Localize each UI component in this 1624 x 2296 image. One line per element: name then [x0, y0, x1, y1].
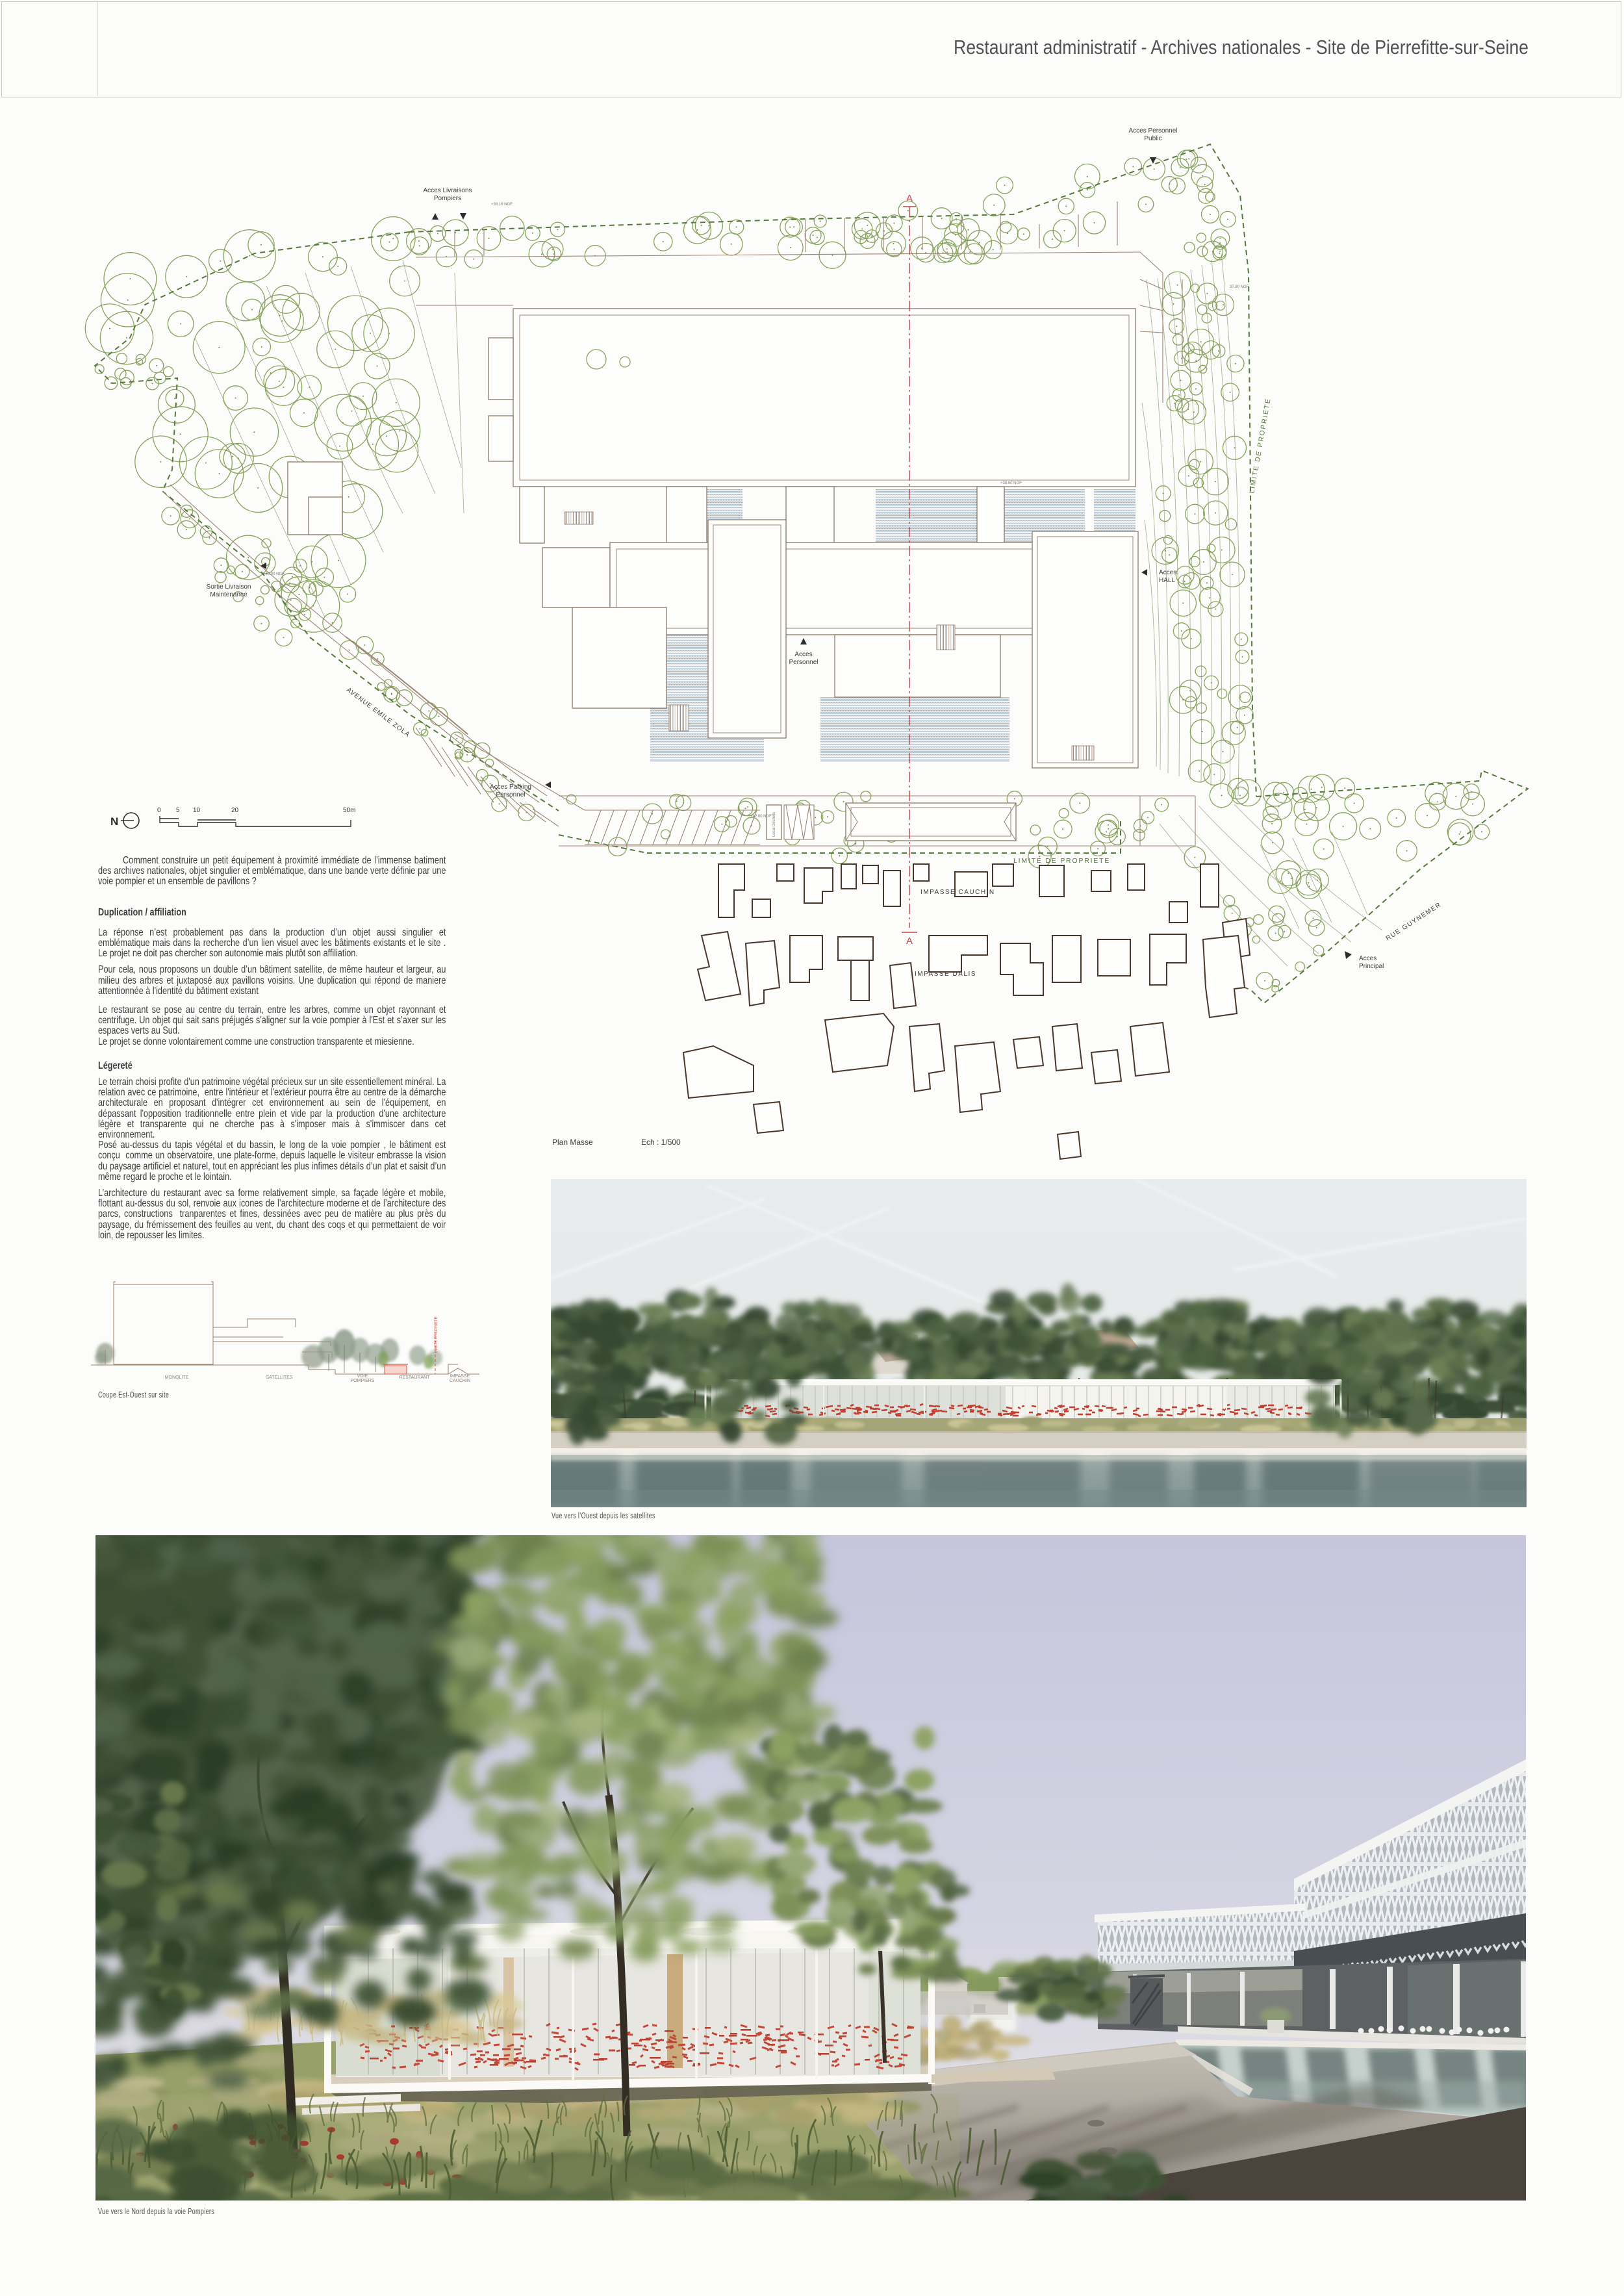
svg-text:IMPASSE: IMPASSE [450, 1374, 470, 1379]
svg-text:CAUCHIN: CAUCHIN [450, 1379, 470, 1383]
svg-text:20: 20 [231, 807, 239, 814]
svg-text:5: 5 [176, 807, 180, 814]
svg-text:Plan Masse: Plan Masse [552, 1138, 593, 1147]
svg-text:LIMITE DE PROPRIETE: LIMITE DE PROPRIETE [1248, 398, 1273, 494]
svg-text:RESTAURANT: RESTAURANT [400, 1375, 431, 1380]
svg-text:Maintenance: Maintenance [210, 591, 247, 598]
svg-text:LIMITE DE PROPRIETE: LIMITE DE PROPRIETE [1013, 857, 1110, 865]
svg-text:Personnel: Personnel [789, 659, 818, 666]
svg-text:VOIE: VOIE [357, 1374, 368, 1379]
svg-text:Acces Personnel: Acces Personnel [1128, 127, 1177, 134]
svg-text:Acces Parking: Acces Parking [490, 784, 531, 791]
svg-text:IMPASSE DALIS: IMPASSE DALIS [915, 971, 976, 978]
svg-text:IMPASSE CAUCHIN: IMPASSE CAUCHIN [920, 889, 995, 896]
svg-text:+40.00 NGF: +40.00 NGF [263, 572, 285, 576]
svg-text:Ech : 1/500: Ech : 1/500 [641, 1138, 681, 1147]
svg-text:Acces: Acces [1159, 569, 1176, 576]
svg-text:MONOLITE: MONOLITE [165, 1375, 189, 1380]
svg-text:Acces Livraisons: Acces Livraisons [423, 187, 472, 194]
svg-text:Local Dechets: Local Dechets [772, 812, 776, 837]
svg-text:Pompiers: Pompiers [434, 195, 461, 202]
svg-text:RUE GUYNEMER: RUE GUYNEMER [1385, 901, 1443, 943]
svg-text:+38.16 NGF: +38.16 NGF [491, 203, 513, 207]
svg-text:A: A [906, 193, 913, 204]
svg-text:+38.50 NGF: +38.50 NGF [1000, 481, 1022, 485]
svg-text:0: 0 [157, 807, 161, 814]
svg-text:HALL: HALL [1159, 577, 1175, 584]
svg-text:A: A [906, 936, 913, 947]
svg-text:37.80 NGF: 37.80 NGF [1230, 285, 1249, 289]
svg-text:+42.00 NGF: +42.00 NGF [750, 815, 772, 819]
svg-text:AVENUE EMILE ZOLA: AVENUE EMILE ZOLA [345, 687, 411, 739]
svg-text:Acces: Acces [1359, 955, 1377, 962]
svg-text:SATELLITES: SATELLITES [266, 1375, 292, 1380]
svg-text:Sortie Livraison: Sortie Livraison [207, 583, 251, 591]
svg-text:POMPIERS: POMPIERS [351, 1379, 375, 1383]
svg-text:LIMITE PROPRIETE: LIMITE PROPRIETE [435, 1316, 438, 1353]
svg-text:N: N [110, 815, 118, 828]
svg-text:50m: 50m [343, 807, 355, 814]
svg-text:10: 10 [193, 807, 201, 814]
svg-text:Public: Public [1144, 135, 1161, 142]
svg-text:Acces: Acces [794, 651, 812, 658]
svg-text:Personnel: Personnel [496, 791, 525, 798]
svg-text:Principal: Principal [1359, 963, 1384, 970]
